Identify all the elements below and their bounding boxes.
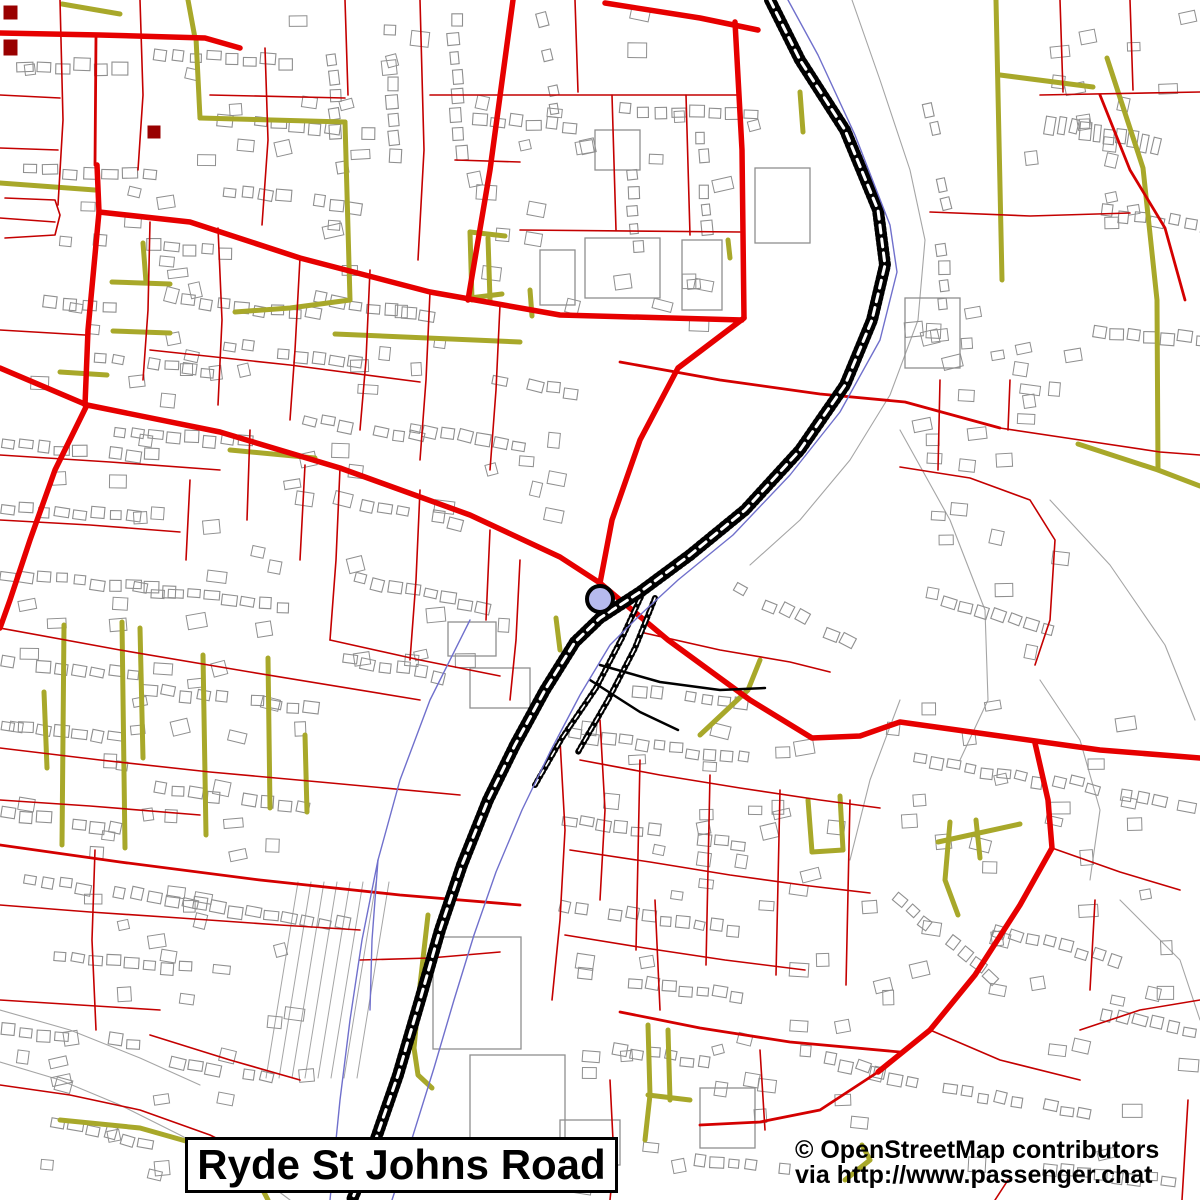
attribution-copyright: © OpenStreetMap contributors (795, 1138, 1195, 1163)
map-canvas[interactable] (0, 0, 1200, 1200)
station-name-label-box: Ryde St Johns Road (185, 1137, 618, 1193)
map-attribution: © OpenStreetMap contributors via http://… (795, 1138, 1195, 1188)
map-viewport: Ryde St Johns Road © OpenStreetMap contr… (0, 0, 1200, 1200)
station-name-label: Ryde St Johns Road (197, 1141, 605, 1189)
attribution-url[interactable]: via http://www.passenger.chat (795, 1163, 1195, 1188)
location-marker[interactable] (587, 586, 613, 612)
